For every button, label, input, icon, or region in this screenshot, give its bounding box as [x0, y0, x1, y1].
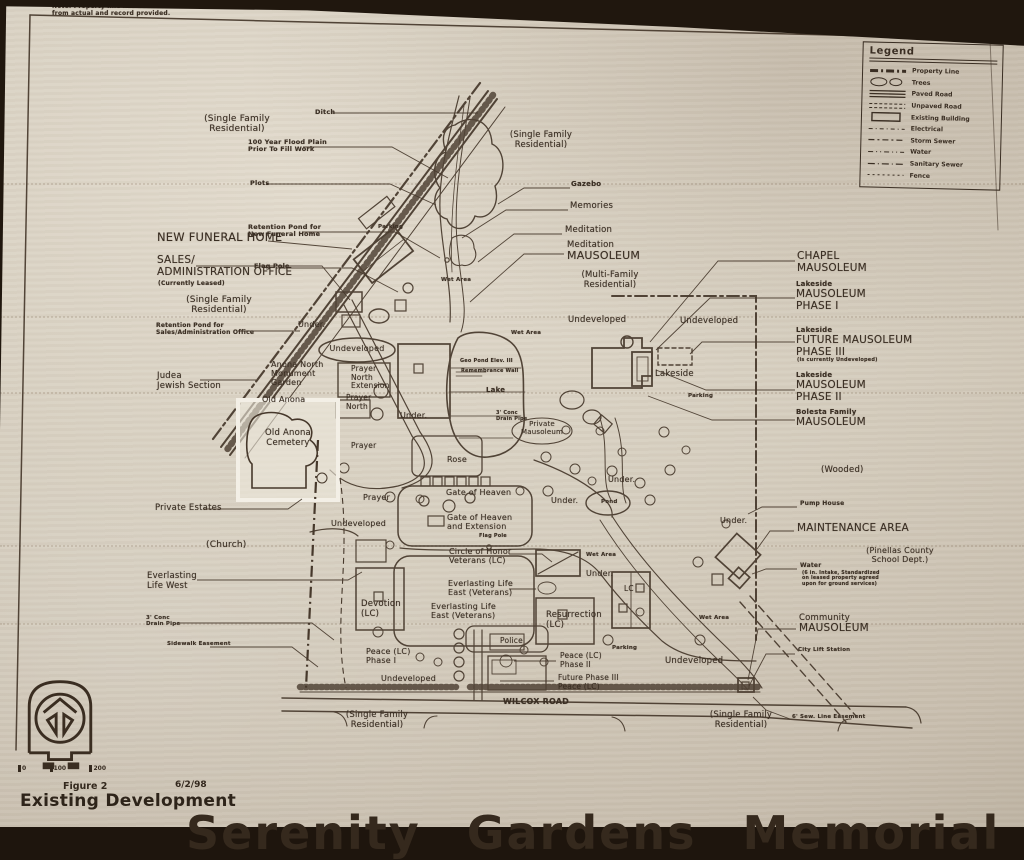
map-label: CHAPEL MAUSOLEUM — [797, 251, 867, 275]
legend: Legend Property LineTreesPaved RoadUnpav… — [859, 41, 1004, 190]
map-label: (Single Family Residential) — [186, 295, 252, 316]
map-label: (Church) — [206, 540, 246, 550]
legend-item-label: Sanitary Sewer — [910, 161, 963, 169]
map-label: Under. — [720, 516, 747, 525]
map-label: Lakeside — [655, 370, 694, 380]
paper-sheet: Note: Property line has been identified … — [0, 0, 1024, 827]
map-label: Undeveloped — [331, 519, 386, 528]
map-label: Undeveloped — [381, 674, 436, 683]
map-label: Parking — [688, 393, 713, 399]
map-label: Wet Area — [586, 552, 616, 558]
map-label: Under. — [298, 320, 325, 329]
map-label: Retention Pond for Sales/Administration … — [156, 323, 254, 337]
map-label: Plots — [250, 180, 269, 187]
map-label: LC — [624, 585, 634, 594]
sanitary-sewer-symbol-icon — [867, 158, 905, 169]
map-label: (Single Family Residential) — [346, 711, 408, 730]
map-label: (Wooded) — [821, 466, 864, 476]
map-label: Gate of Heaven — [446, 488, 511, 497]
map-label: Flag Pole — [479, 534, 507, 540]
map-label: Future Phase III Peace (LC) — [558, 674, 619, 691]
map-label: (Single Family Residential) — [204, 114, 270, 135]
map-label: Under. — [586, 569, 613, 578]
figure-date: 6/2/98 — [175, 780, 207, 790]
map-label: Circle of Honor Veterans (LC) — [449, 547, 511, 565]
legend-item: Fence — [866, 169, 994, 184]
scale-tick: 100 — [50, 765, 67, 772]
water-symbol-icon — [867, 146, 905, 157]
map-label: Old Anona — [262, 395, 305, 404]
map-label: Old Anona Cemetery — [265, 429, 311, 448]
map-label: Undeveloped — [665, 657, 723, 667]
map-label: Devotion (LC) — [361, 600, 401, 619]
electrical-symbol-icon — [868, 123, 906, 134]
map-label: Everlasting Life East (Veterans) — [448, 579, 513, 597]
map-label: Prayer North — [346, 394, 371, 411]
legend-item-label: Property Line — [912, 68, 959, 76]
map-label: Prayer — [351, 442, 376, 451]
legend-item-label: Paved Road — [911, 91, 952, 99]
map-label: Peace (LC) Phase II — [560, 652, 602, 669]
scale-tick: 0 — [18, 765, 26, 772]
map-label: Wet Area — [441, 277, 471, 283]
map-label: Prayer — [363, 493, 390, 502]
site-plan-map: Note: Property line has been identified … — [0, 0, 1024, 827]
map-label: MAUSOLEUM PHASE I — [796, 289, 866, 313]
map-label: Judea Jewish Section — [157, 372, 221, 391]
map-label: Undeveloped — [330, 344, 385, 353]
map-label: (6 in. Intake, Standardized on leased pr… — [802, 571, 880, 587]
map-label: Gate of Heaven and Extension — [447, 513, 512, 531]
map-label: Pond — [601, 499, 617, 505]
storm-sewer-symbol-icon — [867, 135, 905, 146]
map-label: Undeveloped — [680, 317, 738, 327]
map-label: Under. — [608, 475, 635, 484]
map-label: 3' Conc Drain Pipe — [146, 615, 180, 628]
map-label: MAUSOLEUM — [799, 623, 869, 635]
map-label: Meditation — [565, 226, 612, 236]
map-label: NEW FUNERAL HOME — [157, 231, 282, 244]
legend-item-label: Trees — [912, 79, 931, 86]
map-label: Prayer North Extension — [351, 365, 390, 391]
map-label: Geo Pond Elev. III — [460, 359, 513, 365]
map-label: SALES/ ADMINISTRATION OFFICE — [157, 255, 292, 279]
map-label: Gazebo — [571, 181, 601, 189]
map-label: 100 Year Flood Plain Prior To Fill Work — [248, 139, 327, 154]
map-label: Wet Area — [699, 615, 729, 621]
legend-item-label: Electrical — [911, 126, 943, 134]
map-label: (Single Family Residential) — [710, 711, 772, 730]
map-label: Sidewalk Easement — [167, 641, 231, 647]
map-label: Private Mausoleum — [521, 421, 563, 437]
legend-title: Legend — [869, 45, 997, 64]
cutoff-page-title: Serenity Gardens Memorial — [186, 806, 1000, 860]
map-label: City Lift Station — [798, 647, 850, 653]
existing-building-symbol-icon — [868, 112, 906, 123]
map-label: Under. — [551, 496, 578, 505]
highlight-box — [238, 400, 338, 500]
map-label: MAUSOLEUM — [796, 417, 866, 429]
legend-items: Property LineTreesPaved RoadUnpaved Road… — [866, 64, 997, 183]
map-label: MAINTENANCE AREA — [797, 523, 909, 535]
map-label: MAUSOLEUM — [567, 250, 640, 263]
north-arrow-logo — [16, 674, 104, 774]
map-label: Peace (LC) Phase I — [366, 647, 411, 665]
fence-symbol-icon — [866, 170, 904, 181]
map-label: Wet Area — [511, 330, 541, 336]
map-label: 6' Sew. Line Easement — [792, 714, 865, 720]
map-label: Resurrection (LC) — [546, 611, 602, 630]
map-label: (Multi-Family Residential) — [581, 271, 638, 290]
map-label: Private Estates — [155, 504, 222, 514]
paved-road-symbol-icon — [868, 88, 906, 99]
legend-item-label: Unpaved Road — [911, 103, 962, 111]
map-label: Parking — [378, 224, 403, 230]
map-label: Lake — [486, 387, 505, 395]
legend-item-label: Storm Sewer — [910, 137, 955, 145]
scale-tick: 200 — [89, 765, 106, 772]
map-label: Pump House — [800, 501, 844, 508]
map-label: (is currently Undeveloped) — [797, 358, 878, 364]
property-line-symbol-icon — [869, 65, 907, 76]
map-label: MAUSOLEUM PHASE II — [796, 380, 866, 404]
map-label: WILCOX ROAD — [503, 697, 569, 706]
unpaved-road-symbol-icon — [868, 100, 906, 111]
legend-item-label: Existing Building — [911, 114, 970, 122]
map-label: Remembrance Wall — [461, 369, 518, 375]
map-label: Everlasting Life West — [147, 572, 197, 591]
map-label: Anona North Monument Garden — [271, 360, 324, 387]
map-label: Everlasting Life East (Veterans) — [431, 602, 496, 620]
map-label: (Pinellas County School Dept.) — [866, 546, 934, 564]
scale-bar: 0 100 200 — [18, 765, 106, 772]
map-label: FUTURE MAUSOLEUM PHASE III — [796, 335, 912, 359]
map-label: (Single Family Residential) — [510, 131, 572, 150]
map-label: Ditch — [315, 109, 335, 116]
map-label: Parking — [612, 645, 637, 651]
map-label: (Currently Leased) — [158, 281, 225, 288]
map-label: Police — [500, 637, 523, 646]
legend-item-label: Water — [910, 149, 931, 157]
map-label: Rose — [447, 455, 467, 464]
map-label: Under. — [400, 411, 427, 420]
map-label: Memories — [570, 202, 613, 212]
trees-symbol-icon — [869, 77, 907, 88]
legend-item-label: Fence — [909, 172, 930, 179]
map-label: Undeveloped — [568, 316, 626, 326]
map-label: Water — [800, 563, 821, 570]
